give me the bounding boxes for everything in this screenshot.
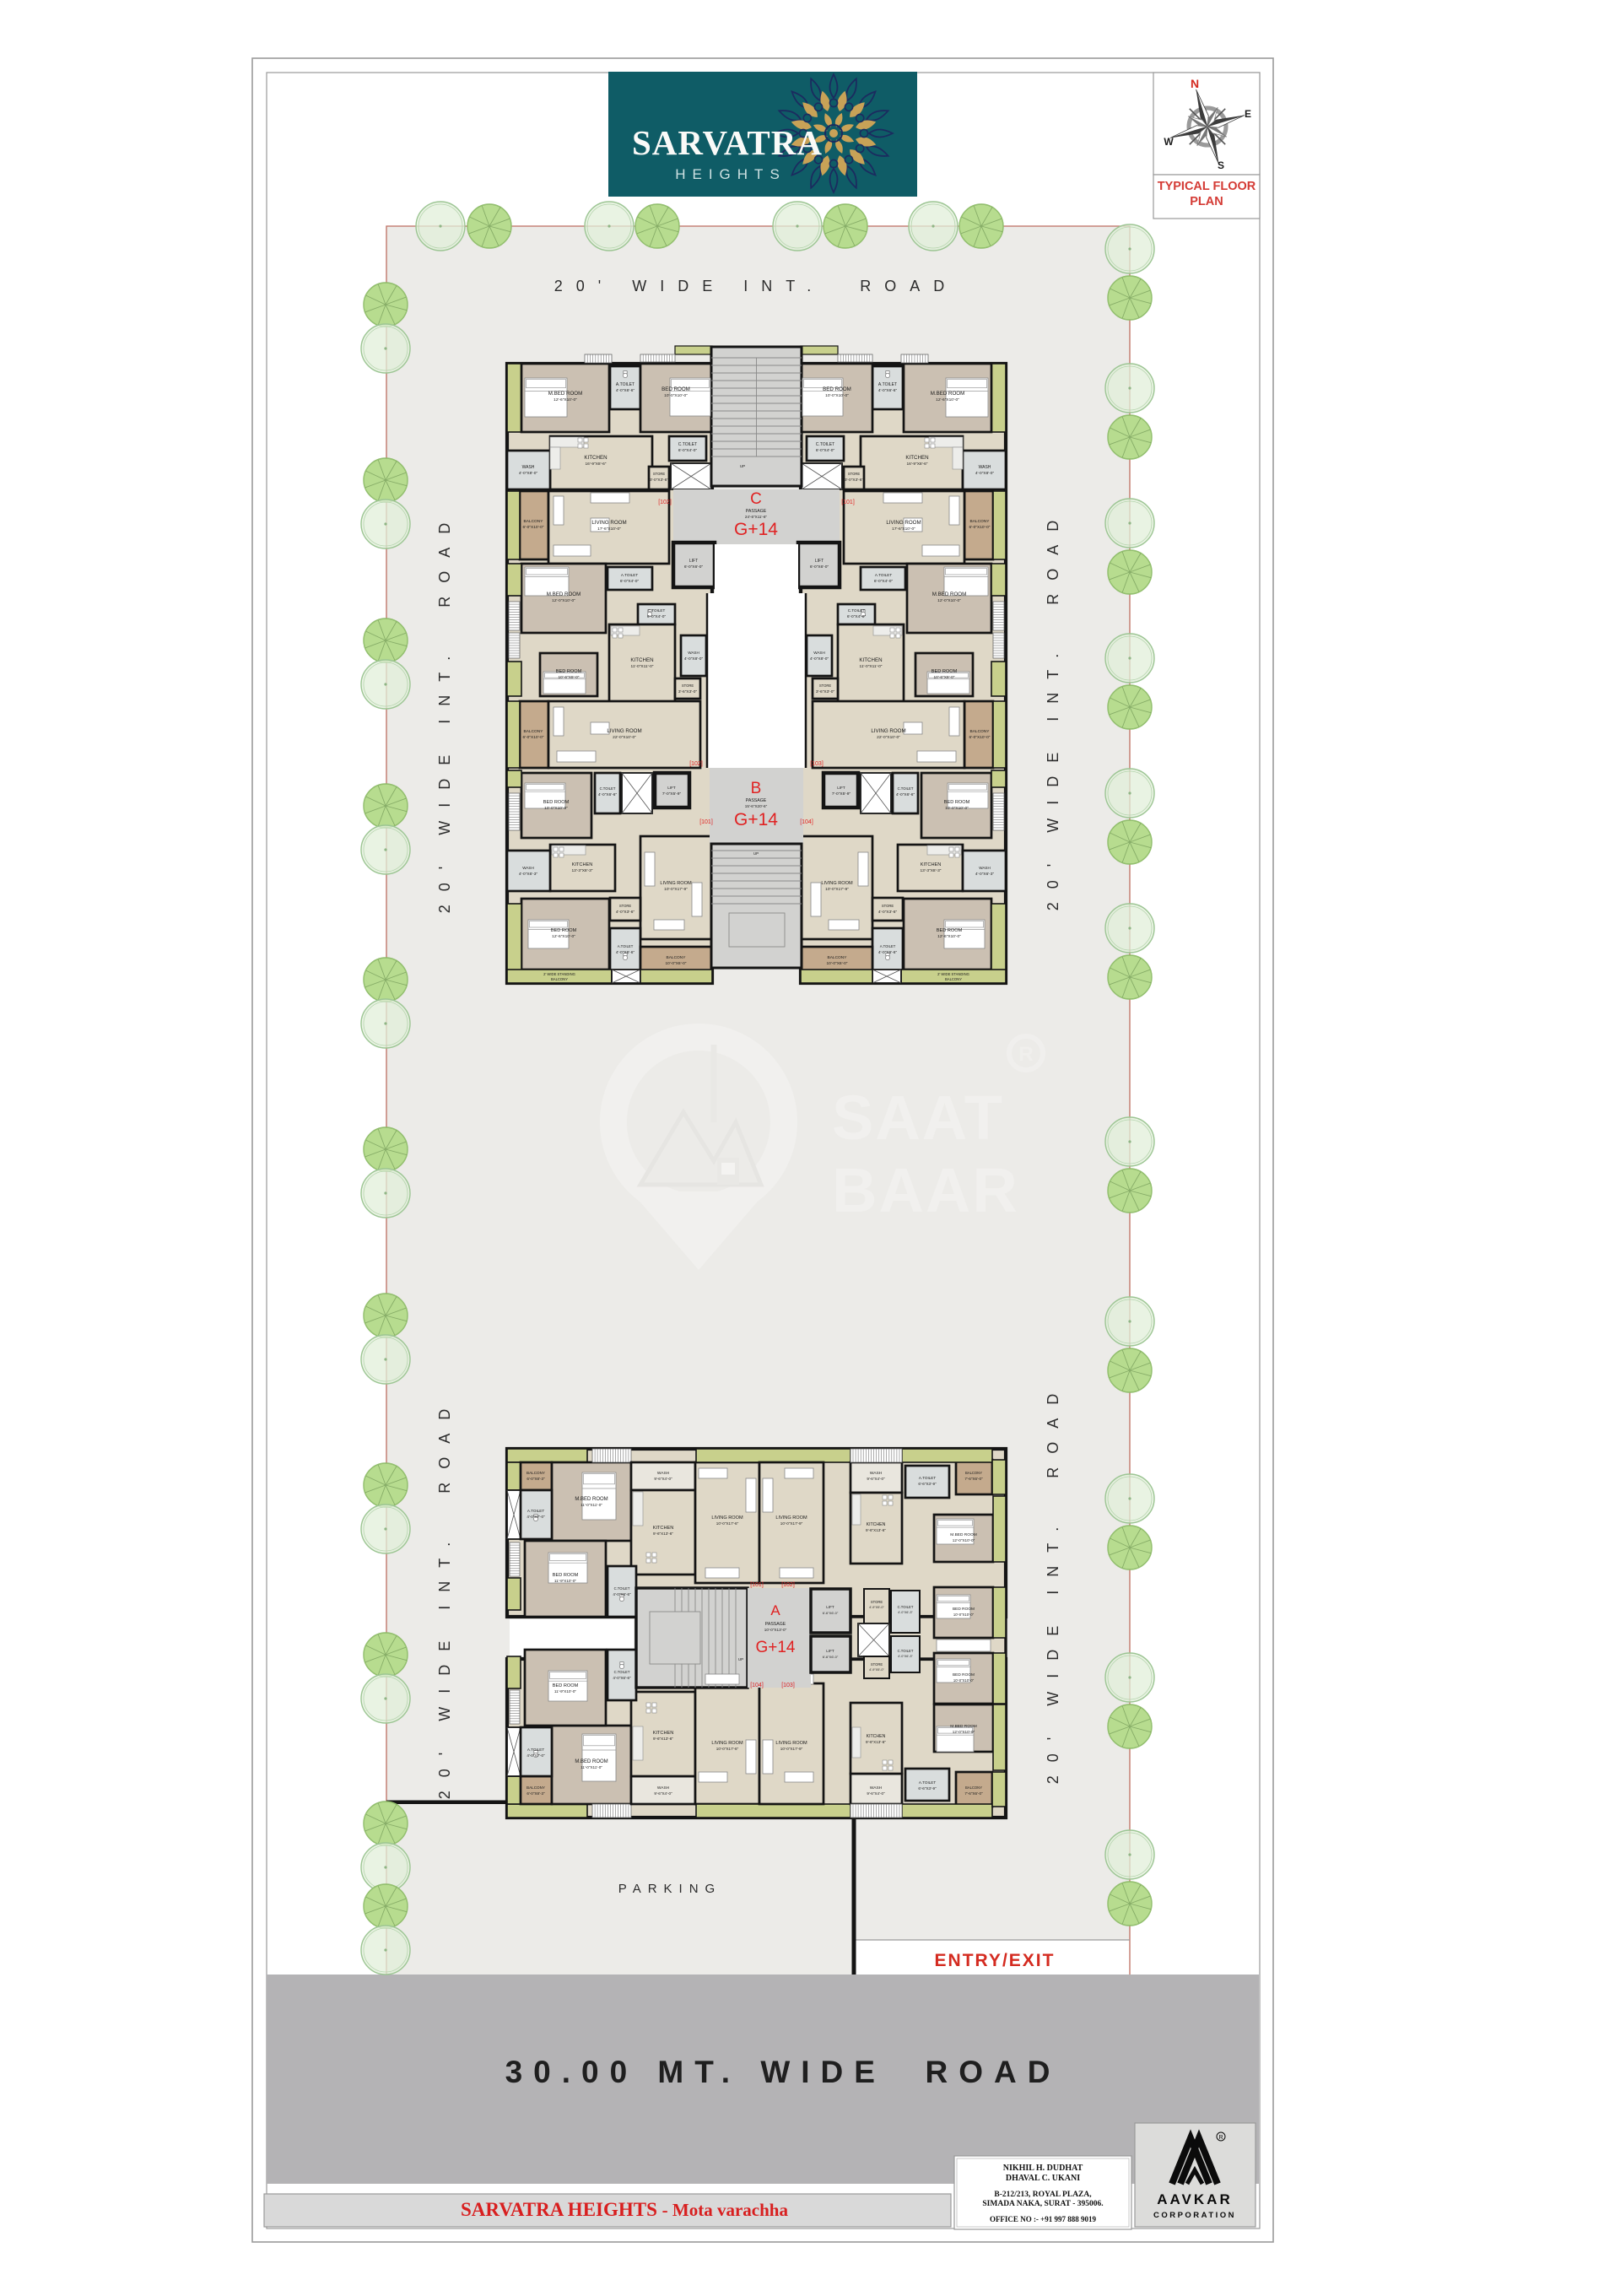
svg-text:22'-0"X10'-0": 22'-0"X10'-0" [877, 735, 900, 740]
svg-text:6'-6"X6'-0": 6'-6"X6'-0" [823, 1611, 839, 1615]
svg-text:G+14: G+14 [734, 520, 778, 539]
svg-text:10'-0"X13'-0": 10'-0"X13'-0" [764, 1628, 787, 1632]
svg-text:C.TOILET: C.TOILET [816, 442, 834, 447]
svg-text:12'-0"X10'-0": 12'-0"X10'-0" [953, 1538, 975, 1542]
svg-text:S: S [1218, 159, 1224, 171]
svg-text:6'-0"X4'-0": 6'-0"X4'-0" [620, 579, 640, 584]
svg-text:[102]: [102] [658, 500, 672, 505]
svg-text:6'-0"X8'-3": 6'-0"X8'-3" [526, 1791, 545, 1796]
svg-text:LIVING ROOM: LIVING ROOM [871, 728, 905, 734]
svg-text:4'-9"X5'-0": 4'-9"X5'-0" [869, 1668, 884, 1672]
svg-text:4'-0"X6'-6": 4'-0"X6'-6" [613, 1676, 631, 1680]
svg-text:PASSAGE: PASSAGE [746, 509, 767, 514]
svg-text:KITCHEN: KITCHEN [653, 1731, 674, 1736]
svg-text:WASH: WASH [522, 866, 534, 870]
svg-text:AAVKAR: AAVKAR [1157, 2191, 1232, 2207]
svg-text:C.TOILET: C.TOILET [898, 1605, 914, 1609]
svg-text:9'-6"X4'-0": 9'-6"X4'-0" [654, 1477, 672, 1481]
svg-text:2' WIDE STANDING: 2' WIDE STANDING [937, 972, 969, 976]
svg-text:A.TOILET: A.TOILET [880, 944, 896, 948]
svg-text:11'-0"X11'-0": 11'-0"X11'-0" [580, 1765, 602, 1769]
svg-text:C.TOILET: C.TOILET [898, 1649, 914, 1653]
svg-text:KITCHEN: KITCHEN [867, 1734, 886, 1739]
svg-text:6'-0"X4'-0": 6'-0"X4'-0" [647, 614, 667, 619]
svg-text:G+14: G+14 [755, 1639, 795, 1656]
svg-text:[104]: [104] [750, 1683, 764, 1688]
svg-text:4'-0"X6'-6": 4'-0"X6'-6" [598, 792, 618, 797]
svg-text:NIKHIL H. DUDHAT: NIKHIL H. DUDHAT [1003, 2164, 1083, 2173]
svg-text:[102]: [102] [781, 1582, 795, 1588]
svg-text:10'-6"X9'-0": 10'-6"X9'-0" [934, 675, 955, 680]
svg-text:C.TOILET: C.TOILET [678, 442, 697, 447]
svg-text:10'-0"X10'-0": 10'-0"X10'-0" [825, 393, 849, 398]
svg-text:A.TOILET: A.TOILET [618, 944, 634, 948]
svg-text:11'-9"X10'-0": 11'-9"X10'-0" [554, 1579, 576, 1583]
svg-text:22'-0"X10'-0": 22'-0"X10'-0" [613, 735, 636, 740]
svg-text:WASH: WASH [870, 1471, 883, 1476]
svg-text:4'-0"X6'-6": 4'-0"X6'-6" [616, 388, 635, 393]
svg-text:BED ROOM: BED ROOM [551, 928, 577, 933]
svg-text:C.TOILET: C.TOILET [648, 608, 666, 613]
svg-text:R: R [1218, 2135, 1223, 2141]
svg-text:OFFICE NO :- +91 997 888 9019: OFFICE NO :- +91 997 888 9019 [990, 2215, 1097, 2223]
svg-text:C.TOILET: C.TOILET [848, 608, 866, 613]
svg-text:BALCONY: BALCONY [526, 1785, 545, 1790]
svg-text:12'-6"X10'-0": 12'-6"X10'-0" [552, 934, 575, 939]
svg-text:BALCONY: BALCONY [551, 977, 568, 981]
svg-text:WASH: WASH [979, 866, 991, 870]
svg-text:11'-0"X11'-0": 11'-0"X11'-0" [860, 664, 883, 669]
svg-text:4'-0"X6'-6": 4'-0"X6'-6" [896, 792, 915, 797]
svg-text:A.TOILET: A.TOILET [527, 1748, 545, 1752]
svg-text:C.TOILET: C.TOILET [614, 1670, 630, 1674]
svg-text:BALCONY: BALCONY [828, 955, 848, 960]
svg-text:BAAR: BAAR [832, 1155, 1019, 1225]
svg-text:LIVING ROOM: LIVING ROOM [711, 1741, 743, 1746]
svg-text:[103]: [103] [810, 761, 823, 767]
svg-text:M.BED ROOM: M.BED ROOM [575, 1497, 607, 1502]
svg-text:M.BED ROOM: M.BED ROOM [575, 1759, 607, 1764]
svg-text:3'-0"X3'-6": 3'-0"X3'-6" [845, 478, 864, 483]
svg-text:B-212/213, ROYAL PLAZA,: B-212/213, ROYAL PLAZA, [994, 2191, 1092, 2199]
svg-text:LIVING ROOM: LIVING ROOM [775, 1515, 807, 1521]
svg-text:6'-0"X4'-0": 6'-0"X4'-0" [874, 579, 894, 584]
svg-text:M.BED ROOM: M.BED ROOM [548, 391, 583, 397]
svg-text:16'-9"X8'-6": 16'-9"X8'-6" [907, 462, 928, 467]
svg-text:6'-0"X8'-3": 6'-0"X8'-3" [526, 1477, 545, 1481]
svg-text:10'-0"X17'-9": 10'-0"X17'-9" [825, 887, 849, 892]
svg-text:10'-0"X6'-0": 10'-0"X6'-0" [827, 961, 848, 966]
svg-text:A: A [770, 1602, 780, 1618]
svg-text:STORE: STORE [882, 904, 894, 908]
svg-text:PASSAGE: PASSAGE [765, 1622, 786, 1627]
svg-text:4'-0"X3'-6": 4'-0"X3'-6" [616, 910, 635, 915]
svg-text:STORE: STORE [819, 683, 832, 688]
svg-text:11'-0"X11'-0": 11'-0"X11'-0" [580, 1503, 602, 1507]
svg-text:12'-0"X10'-0": 12'-0"X10'-0" [552, 598, 575, 603]
svg-text:CORPORATION: CORPORATION [1153, 2211, 1236, 2220]
svg-text:17'-6"X10'-0": 17'-6"X10'-0" [597, 527, 621, 532]
svg-text:STORE: STORE [682, 683, 694, 688]
svg-text:LIFT: LIFT [815, 559, 823, 564]
svg-text:BED ROOM: BED ROOM [931, 669, 958, 674]
svg-text:LIVING ROOM: LIVING ROOM [607, 728, 641, 734]
svg-text:4'-0"X6'-6": 4'-0"X6'-6" [616, 950, 635, 955]
svg-text:11'-9"X10'-0": 11'-9"X10'-0" [554, 1689, 576, 1694]
svg-text:C.TOILET: C.TOILET [614, 1586, 630, 1591]
svg-text:C: C [750, 490, 762, 508]
svg-text:6'-0"X10'-0": 6'-0"X10'-0" [523, 735, 544, 740]
svg-text:4'-0"X8'-0": 4'-0"X8'-0" [975, 471, 995, 476]
svg-text:[104]: [104] [800, 819, 813, 825]
svg-text:4'-0"X8'-0": 4'-0"X8'-0" [519, 471, 538, 476]
svg-text:BED ROOM: BED ROOM [937, 928, 963, 933]
svg-text:6'-0"X4'-0": 6'-0"X4'-0" [816, 448, 835, 453]
svg-text:3'-0"X3'-6": 3'-0"X3'-6" [650, 478, 669, 483]
svg-text:BALCONY: BALCONY [945, 977, 962, 981]
svg-text:2' WIDE STANDING: 2' WIDE STANDING [543, 972, 575, 976]
svg-text:10'-0"X17'-6": 10'-0"X17'-6" [716, 1747, 739, 1751]
svg-text:PASSAGE: PASSAGE [746, 798, 767, 803]
svg-text:9'-6"X4'-0": 9'-6"X4'-0" [867, 1791, 885, 1796]
svg-text:7'-6"X6'-0": 7'-6"X6'-0" [964, 1791, 983, 1796]
svg-text:10'-0"X17'-6": 10'-0"X17'-6" [716, 1521, 739, 1526]
svg-text:W: W [1164, 136, 1174, 148]
svg-text:20' WIDE INT. ROAD: 20' WIDE INT. ROAD [1045, 507, 1061, 910]
svg-text:KITCHEN: KITCHEN [630, 657, 653, 663]
svg-text:10'-0"X10'-0": 10'-0"X10'-0" [945, 806, 969, 811]
svg-text:STORE: STORE [653, 472, 666, 476]
svg-text:C.TOILET: C.TOILET [898, 786, 914, 791]
svg-text:10'-6"X9'-0": 10'-6"X9'-0" [559, 675, 580, 680]
svg-text:N: N [1191, 77, 1199, 90]
svg-text:STORE: STORE [871, 1600, 883, 1604]
svg-text:20' WIDE INT. ROAD: 20' WIDE INT. ROAD [554, 278, 958, 294]
svg-text:12'-6"X10'-0": 12'-6"X10'-0" [936, 397, 959, 402]
svg-text:A.TOILET: A.TOILET [875, 573, 893, 577]
svg-text:M.BED ROOM: M.BED ROOM [547, 592, 581, 597]
svg-text:[101]: [101] [699, 819, 713, 825]
svg-text:WASH: WASH [870, 1785, 883, 1791]
svg-text:[103]: [103] [781, 1683, 795, 1688]
svg-text:16'-9"X8'-6": 16'-9"X8'-6" [586, 462, 607, 467]
svg-text:BED ROOM: BED ROOM [823, 386, 851, 392]
svg-text:BED ROOM: BED ROOM [543, 800, 570, 805]
svg-text:BALCONY: BALCONY [524, 519, 544, 524]
svg-text:BED ROOM: BED ROOM [944, 800, 970, 805]
svg-text:ENTRY/EXIT: ENTRY/EXIT [935, 1951, 1056, 1970]
svg-text:9'-6"X13'-6": 9'-6"X13'-6" [866, 1528, 886, 1532]
svg-text:BALCONY: BALCONY [970, 519, 991, 524]
svg-text:24'-6"X11'-6": 24'-6"X11'-6" [745, 515, 767, 519]
svg-text:10'-0"X10'-0": 10'-0"X10'-0" [953, 1678, 975, 1683]
svg-text:BALCONY: BALCONY [965, 1471, 982, 1475]
svg-text:10'-0"X6'-0": 10'-0"X6'-0" [666, 961, 687, 966]
svg-text:LIFT: LIFT [826, 1649, 834, 1653]
svg-text:E: E [1245, 108, 1251, 120]
svg-text:9'-6"X13'-6": 9'-6"X13'-6" [653, 1737, 673, 1741]
svg-text:30.00 MT. WIDE ROAD: 30.00 MT. WIDE ROAD [505, 2055, 1061, 2089]
svg-text:C.TOILET: C.TOILET [600, 786, 616, 791]
svg-text:BED ROOM: BED ROOM [953, 1672, 975, 1677]
svg-text:[101]: [101] [841, 500, 855, 505]
svg-text:4'-0"X8'-0": 4'-0"X8'-0" [810, 656, 829, 662]
svg-text:[102]: [102] [689, 761, 703, 767]
svg-text:KITCHEN: KITCHEN [653, 1526, 674, 1531]
svg-text:UP: UP [738, 1657, 743, 1661]
svg-text:4'-0"X6'-6": 4'-0"X6'-6" [613, 1592, 631, 1596]
svg-text:3'-6"X3'-0": 3'-6"X3'-0" [816, 689, 835, 694]
svg-text:3'-6"X3'-0": 3'-6"X3'-0" [678, 689, 698, 694]
svg-text:10'-0"X10'-0": 10'-0"X10'-0" [953, 1613, 975, 1617]
svg-text:BED ROOM: BED ROOM [553, 1683, 579, 1688]
svg-text:13'-3"X8'-3": 13'-3"X8'-3" [921, 868, 942, 873]
svg-text:STORE: STORE [619, 904, 632, 908]
svg-text:BED ROOM: BED ROOM [953, 1607, 975, 1612]
svg-text:LIFT: LIFT [826, 1605, 834, 1609]
svg-text:6'-0"X10'-0": 6'-0"X10'-0" [969, 525, 991, 530]
svg-text:4'-0"X7'-0": 4'-0"X7'-0" [526, 1753, 545, 1758]
svg-text:BALCONY: BALCONY [667, 955, 687, 960]
svg-text:BED ROOM: BED ROOM [556, 669, 582, 674]
svg-text:4'-0"X7'-0": 4'-0"X7'-0" [526, 1515, 545, 1519]
svg-text:6'-0"X4'-0": 6'-0"X4'-0" [847, 614, 867, 619]
svg-text:WASH: WASH [979, 465, 991, 470]
svg-text:WASH: WASH [813, 651, 825, 655]
svg-text:12'-6"X10'-0": 12'-6"X10'-0" [553, 397, 577, 402]
svg-text:9'-6"X4'-0": 9'-6"X4'-0" [654, 1791, 672, 1796]
svg-text:4'-0"X6'-6": 4'-0"X6'-6" [878, 950, 898, 955]
svg-text:7'-0"X5'-9": 7'-0"X5'-9" [662, 791, 682, 797]
svg-text:BALCONY: BALCONY [524, 729, 544, 734]
svg-text:6'-6"X3'-9": 6'-6"X3'-9" [918, 1786, 937, 1791]
svg-text:9'-6"X4'-0": 9'-6"X4'-0" [867, 1477, 885, 1481]
svg-text:KITCHEN: KITCHEN [572, 862, 593, 867]
svg-text:A.TOILET: A.TOILET [919, 1476, 937, 1480]
svg-text:17'-6"X10'-0": 17'-6"X10'-0" [892, 527, 915, 532]
svg-text:STORE: STORE [871, 1662, 883, 1667]
svg-text:4'-0"X6'-3": 4'-0"X6'-3" [898, 1655, 913, 1658]
svg-text:4'-9"X5'-0": 4'-9"X5'-0" [869, 1606, 884, 1609]
svg-text:STORE: STORE [848, 472, 861, 476]
svg-text:4'-0"X3'-6": 4'-0"X3'-6" [878, 910, 898, 915]
svg-text:KITCHEN: KITCHEN [859, 657, 882, 663]
svg-text:SARVATRA: SARVATRA [632, 123, 823, 162]
svg-text:10'-0"X10'-0": 10'-0"X10'-0" [544, 806, 568, 811]
svg-text:KITCHEN: KITCHEN [905, 455, 928, 461]
svg-text:4'-0"X6'-3": 4'-0"X6'-3" [519, 872, 538, 877]
svg-text:PLAN: PLAN [1190, 195, 1223, 208]
svg-text:M.BED ROOM: M.BED ROOM [931, 391, 965, 397]
svg-text:15'-6"X20'-6": 15'-6"X20'-6" [745, 804, 768, 808]
svg-text:LIVING ROOM: LIVING ROOM [821, 881, 853, 886]
svg-text:A.TOILET: A.TOILET [621, 573, 639, 577]
svg-text:LIVING ROOM: LIVING ROOM [591, 520, 626, 526]
svg-text:WASH: WASH [522, 465, 535, 470]
svg-text:M.BED ROOM: M.BED ROOM [932, 592, 967, 597]
svg-text:LIVING ROOM: LIVING ROOM [711, 1515, 743, 1521]
svg-text:WASH: WASH [688, 651, 699, 655]
svg-text:KITCHEN: KITCHEN [921, 862, 942, 867]
svg-text:6'-6"X6'-0": 6'-6"X6'-0" [823, 1655, 839, 1659]
svg-text:LIVING ROOM: LIVING ROOM [775, 1741, 807, 1746]
svg-text:6'-0"X6'-0": 6'-0"X6'-0" [684, 565, 704, 570]
svg-text:BED ROOM: BED ROOM [661, 386, 690, 392]
svg-text:BALCONY: BALCONY [970, 729, 991, 734]
svg-text:PARKING: PARKING [618, 1882, 721, 1896]
svg-text:B: B [751, 780, 762, 797]
svg-text:BALCONY: BALCONY [965, 1785, 982, 1790]
svg-text:UP: UP [740, 464, 745, 468]
svg-text:20' WIDE INT. ROAD: 20' WIDE INT. ROAD [1045, 1380, 1061, 1784]
svg-text:SAAT: SAAT [832, 1083, 1004, 1153]
svg-text:6'-0"X10'-0": 6'-0"X10'-0" [523, 525, 544, 530]
svg-text:6'-0"X4'-0": 6'-0"X4'-0" [678, 448, 698, 453]
svg-text:R: R [1018, 1043, 1033, 1066]
svg-text:HEIGHTS: HEIGHTS [675, 166, 786, 182]
svg-text:10'-0"X17'-9": 10'-0"X17'-9" [664, 887, 688, 892]
svg-text:20' WIDE INT. ROAD: 20' WIDE INT. ROAD [436, 1396, 453, 1799]
svg-text:BALCONY: BALCONY [526, 1471, 545, 1475]
svg-text:4'-0"X6'-3": 4'-0"X6'-3" [898, 1611, 913, 1614]
svg-text:DHAVAL C. UKANI: DHAVAL C. UKANI [1006, 2174, 1080, 2183]
svg-text:A.TOILET: A.TOILET [527, 1509, 545, 1513]
svg-text:4'-0"X6'-6": 4'-0"X6'-6" [878, 388, 898, 393]
svg-text:7'-6"X6'-0": 7'-6"X6'-0" [964, 1477, 983, 1481]
svg-text:13'-3"X8'-3": 13'-3"X8'-3" [572, 868, 593, 873]
svg-text:LIFT: LIFT [689, 559, 698, 564]
svg-text:4'-0"X6'-3": 4'-0"X6'-3" [975, 872, 995, 877]
svg-text:KITCHEN: KITCHEN [867, 1522, 886, 1527]
svg-text:6'-0"X10'-0": 6'-0"X10'-0" [969, 735, 991, 740]
svg-text:A.TOILET: A.TOILET [616, 382, 634, 387]
svg-text:KITCHEN: KITCHEN [584, 455, 607, 461]
svg-text:10'-0"X17'-9": 10'-0"X17'-9" [780, 1521, 803, 1526]
svg-text:UP: UP [753, 851, 759, 856]
svg-text:10'-0"X10'-0": 10'-0"X10'-0" [664, 393, 688, 398]
svg-text:WASH: WASH [657, 1785, 670, 1791]
svg-text:M.BED ROOM: M.BED ROOM [950, 1724, 976, 1729]
svg-text:9'-6"X13'-6": 9'-6"X13'-6" [866, 1740, 886, 1744]
svg-text:12'-6"X10'-0": 12'-6"X10'-0" [937, 934, 961, 939]
svg-text:9'-6"X13'-6": 9'-6"X13'-6" [653, 1532, 673, 1536]
svg-text:A.TOILET: A.TOILET [878, 382, 897, 387]
svg-text:A.TOILET: A.TOILET [919, 1780, 937, 1785]
svg-text:6'-6"X3'-9": 6'-6"X3'-9" [918, 1482, 937, 1486]
svg-text:M.BED ROOM: M.BED ROOM [950, 1532, 976, 1537]
svg-text:6'-0"X6'-0": 6'-0"X6'-0" [810, 565, 829, 570]
svg-text:12'-0"X10'-0": 12'-0"X10'-0" [937, 598, 961, 603]
svg-text:G+14: G+14 [734, 810, 778, 829]
svg-text:BED ROOM: BED ROOM [553, 1573, 579, 1578]
svg-text:[101]: [101] [750, 1582, 764, 1588]
svg-text:TYPICAL FLOOR: TYPICAL FLOOR [1158, 180, 1256, 193]
svg-text:11'-0"X11'-0": 11'-0"X11'-0" [631, 664, 654, 669]
svg-text:SARVATRA HEIGHTS - Mota varach: SARVATRA HEIGHTS - Mota varachha [461, 2199, 788, 2220]
svg-text:7'-0"X5'-9": 7'-0"X5'-9" [832, 791, 851, 797]
svg-text:WASH: WASH [657, 1471, 670, 1476]
svg-text:12'-0"X10'-0": 12'-0"X10'-0" [953, 1730, 975, 1734]
svg-text:20' WIDE INT. ROAD: 20' WIDE INT. ROAD [436, 510, 453, 913]
svg-text:10'-0"X17'-9": 10'-0"X17'-9" [780, 1747, 803, 1751]
svg-text:4'-0"X8'-0": 4'-0"X8'-0" [684, 656, 704, 662]
svg-text:LIVING ROOM: LIVING ROOM [660, 881, 692, 886]
svg-text:SIMADA NAKA, SURAT - 395006.: SIMADA NAKA, SURAT - 395006. [982, 2200, 1103, 2208]
svg-text:LIFT: LIFT [667, 786, 676, 790]
svg-text:LIFT: LIFT [837, 786, 845, 790]
svg-text:LIVING ROOM: LIVING ROOM [886, 520, 921, 526]
